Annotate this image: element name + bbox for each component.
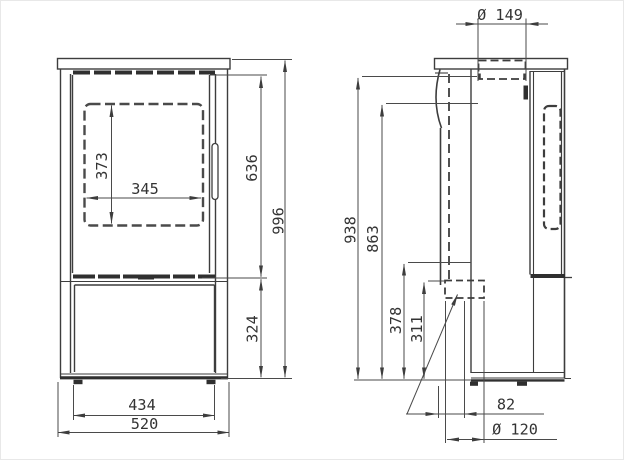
front-left-foot [74,380,83,384]
side-door-hinge [524,86,529,100]
dim-label-air-inlet-height: 311 [408,315,426,342]
dim-label-glass-width: 345 [131,180,158,198]
side-flue-collar-hidden [479,61,526,80]
dim-label-body-width: 434 [128,396,155,414]
front-door-handle [212,144,218,200]
dim-label-total-width: 520 [131,415,158,433]
side-front-foot [517,382,527,386]
dim-label-rear-flue-top-height: 938 [342,216,360,243]
front-door-latch [138,275,154,280]
dim-label-air-inlet-diameter: Ø 120 [492,421,538,439]
front-view [58,59,231,385]
dim-label-glass-height: 373 [93,152,111,179]
front-dimensions [58,60,292,438]
side-glass-window-hidden-outline [544,106,561,229]
side-rear-flue-outlet-arc [436,70,441,129]
dim-label-rear-flue-center-height: 863 [364,225,382,252]
front-top-plate [58,59,231,70]
technical-drawing-page: 373 345 636 996 324 434 520 Ø 149 938 86… [0,0,624,460]
front-right-foot [207,380,216,384]
dim-label-base-section-height: 324 [244,315,262,342]
dim-label-flue-collar-diameter: Ø 149 [477,6,523,24]
leader-line-air-inlet [407,295,458,415]
side-rear-foot [470,382,478,386]
side-top-plate [435,59,568,70]
dim-label-upper-section-height: 636 [243,154,261,181]
dim-label-air-inlet-rear-offset: 82 [497,396,515,414]
dim-label-air-inlet-upper-height: 378 [387,307,405,334]
stove-dimension-drawing: 373 345 636 996 324 434 520 Ø 149 938 86… [1,1,624,460]
dim-label-total-height: 996 [270,207,288,234]
side-air-inlet-stub-hidden [445,281,484,299]
side-view [435,59,573,386]
